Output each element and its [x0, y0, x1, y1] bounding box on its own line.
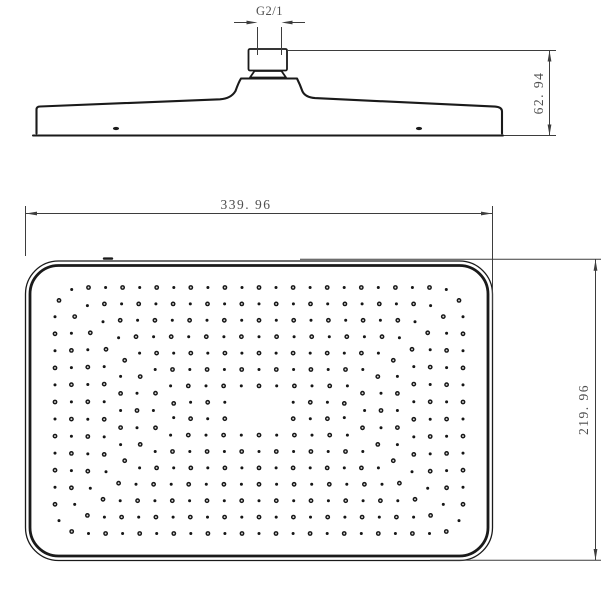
nozzle-dot — [445, 400, 448, 403]
nozzle-dot — [120, 427, 122, 429]
nozzle-dot — [70, 366, 73, 369]
nozzle-dot — [105, 348, 107, 350]
nozzle-dot — [326, 287, 328, 289]
nozzle-dot — [173, 402, 175, 404]
nozzle-dot — [346, 336, 348, 338]
nozzle-dot — [206, 352, 209, 355]
nozzle-dot — [205, 336, 207, 338]
nozzle-dot — [54, 435, 56, 437]
nozzle-dot — [188, 368, 191, 371]
nozzle-dot — [205, 483, 208, 486]
side-view: G2/1 62. 94 — [33, 4, 556, 136]
nozzle-dot — [223, 499, 226, 502]
nozzle-dot — [54, 503, 56, 505]
nozzle-dot — [309, 417, 312, 420]
nozzle-dot — [326, 302, 329, 305]
nozzle-dot — [241, 500, 243, 502]
nozzle-dot — [462, 418, 465, 421]
nozzle-dot — [343, 533, 345, 535]
side-height-dimension: 62. 94 — [288, 51, 556, 136]
nozzle-dot — [169, 384, 172, 387]
nozzle-dot — [54, 315, 57, 318]
nozzle-dot — [275, 451, 277, 453]
nozzle-dot — [445, 469, 448, 472]
nozzle-dot — [120, 302, 123, 305]
nozzle-dot — [156, 287, 158, 289]
nozzle-dot — [275, 466, 278, 469]
nozzle-dot — [429, 383, 432, 386]
nozzle-dot — [462, 435, 464, 437]
nozzle-dot — [360, 532, 363, 535]
nozzle-dot — [223, 532, 226, 535]
nozzle-dot — [327, 499, 330, 502]
nozzle-dot — [414, 320, 417, 323]
nozzle-dot — [360, 287, 362, 289]
nozzle-dot — [207, 401, 209, 403]
nozzle-dot — [377, 286, 380, 289]
nozzle-dot — [58, 519, 61, 522]
thread-dimension: G2/1 — [234, 4, 305, 55]
nozzle-dot — [345, 369, 347, 371]
nozzle-dot — [446, 349, 448, 351]
nozzle-dot — [458, 519, 461, 522]
nozzle-dot — [86, 418, 89, 421]
nozzle-dot — [171, 319, 174, 322]
nozzle-dot — [206, 500, 208, 502]
nozzle-dot — [153, 483, 155, 485]
nozzle-dot — [310, 451, 312, 453]
nozzle-dot — [292, 418, 294, 420]
nozzle-dot — [155, 427, 157, 429]
nozzle-dot — [380, 410, 382, 412]
nozzle-dot — [206, 451, 208, 453]
nozzle-dot — [326, 532, 329, 535]
nozzle-dot — [462, 503, 464, 505]
nozzle-dot — [258, 499, 261, 502]
nozzle-dot — [223, 434, 225, 436]
nozzle-dot — [378, 516, 381, 519]
nozzle-dot — [189, 516, 191, 518]
nozzle-dot — [240, 483, 243, 486]
nozzle-dot — [458, 299, 460, 301]
nozzle-dot — [326, 352, 328, 354]
nozzle-dot — [344, 319, 347, 322]
nozzle-dot — [170, 336, 172, 338]
nozzle-dot — [309, 352, 312, 355]
nozzle-dot — [275, 384, 278, 387]
nozzle-dot — [293, 319, 295, 321]
nozzle-dot — [363, 483, 365, 485]
nozzle-dot — [70, 400, 73, 403]
nozzle-dot — [380, 426, 383, 429]
nozzle-dot — [54, 469, 56, 471]
nozzle-dot — [189, 532, 192, 535]
nozzle-dot — [102, 320, 105, 323]
nozzle-dot — [396, 499, 399, 502]
nozzle-dot — [293, 434, 295, 436]
nozzle-dot — [241, 286, 244, 289]
nozzle-dot — [377, 352, 380, 355]
nozzle-dot — [172, 369, 174, 371]
nozzle-dot — [346, 384, 349, 387]
nozzle-dot — [413, 453, 415, 455]
nozzle-dot — [346, 434, 349, 437]
nozzle-dot — [462, 383, 465, 386]
nozzle-dot — [154, 319, 156, 321]
nozzle-dot — [361, 516, 363, 518]
nozzle-dot — [137, 516, 140, 519]
nozzle-dot — [343, 352, 346, 355]
nozzle-dot — [241, 369, 243, 371]
nozzle-dot — [240, 516, 243, 519]
nozzle-dot — [155, 516, 157, 518]
nozzle-dot — [223, 450, 226, 453]
nozzle-dot — [172, 451, 174, 453]
nozzle-dot — [70, 384, 72, 386]
nozzle-dot — [70, 418, 72, 420]
nozzle-dot — [70, 487, 72, 489]
dim-arrow-down-icon — [548, 125, 552, 136]
nozzle-dot — [377, 533, 379, 535]
face-inner-rim — [30, 266, 488, 557]
dim-arrow-right-icon — [247, 21, 258, 25]
nozzle-dot — [117, 336, 120, 339]
nozzle-dot — [87, 470, 89, 472]
nozzle-dot — [361, 450, 364, 453]
nozzle-dot — [343, 416, 346, 419]
nozzle-dot — [427, 332, 429, 334]
nozzle-dot — [345, 483, 348, 486]
nozzle-dot — [70, 452, 72, 454]
nozzle-dot — [395, 302, 398, 305]
nozzle-dot — [326, 467, 328, 469]
nozzle-dot — [54, 367, 56, 369]
nozzle-dot — [258, 368, 261, 371]
nozzle-dot — [86, 304, 89, 307]
nozzle-dot — [292, 287, 294, 289]
nozzle-dot — [169, 434, 172, 437]
nozzle-dot — [190, 418, 192, 420]
nozzle-dot — [104, 286, 107, 289]
nozzle-dot — [462, 401, 464, 403]
nozzle-dot — [395, 516, 397, 518]
nozzle-dot — [446, 418, 448, 420]
nozzle-dot — [412, 516, 415, 519]
nozzle-dot — [54, 452, 57, 455]
nozzle-dot — [58, 299, 60, 301]
nozzle-dot — [394, 532, 397, 535]
nozzle-dot — [309, 466, 312, 469]
nozzle-dot — [258, 352, 260, 354]
nozzle-dot — [224, 467, 226, 469]
nozzle-dot — [343, 466, 346, 469]
nozzle-dot — [121, 532, 124, 535]
nozzle-dot — [275, 286, 278, 289]
nozzle-dot — [292, 532, 295, 535]
nozzle-dot — [190, 287, 192, 289]
nozzle-dot — [442, 503, 445, 506]
nozzle-dot — [378, 303, 380, 305]
nozzle-dot — [206, 417, 209, 420]
nozzle-dot — [412, 365, 415, 368]
nozzle-dot — [258, 335, 261, 338]
nozzle-dot — [360, 352, 362, 354]
nozzle-dot — [206, 286, 209, 289]
nozzle-dot — [343, 402, 345, 404]
nozzle-dot — [155, 392, 157, 394]
nozzle-dot — [309, 401, 311, 403]
nozzle-dot — [326, 418, 328, 420]
nozzle-dot — [190, 467, 192, 469]
nozzle-dot — [224, 287, 226, 289]
nozzle-dot — [54, 486, 57, 489]
nozzle-dot — [326, 401, 329, 404]
nozzle-dot — [394, 287, 396, 289]
nozzle-dot — [119, 319, 121, 321]
nozzle-dot — [71, 531, 73, 533]
nozzle-dot — [380, 392, 383, 395]
nozzle-dot — [188, 499, 191, 502]
nozzle-dot — [190, 352, 192, 354]
nozzle-dot — [429, 401, 431, 403]
nozzle-dot — [258, 302, 261, 305]
nozzle-dot — [119, 499, 122, 502]
nozzle-dot — [188, 483, 190, 485]
nozzle-dot — [309, 286, 312, 289]
nozzle-dot-grid — [53, 285, 466, 536]
nozzle-dot — [119, 443, 122, 446]
nozzle-dot — [224, 352, 226, 354]
nozzle-dot — [103, 453, 105, 455]
connector-collar — [250, 71, 286, 78]
nozzle-dot — [462, 367, 464, 369]
nozzle-dot — [446, 384, 448, 386]
nozzle-dot — [309, 516, 312, 519]
nozzle-dot — [343, 516, 346, 519]
nozzle-dot — [275, 516, 278, 519]
nozzle-dot — [397, 319, 399, 321]
nozzle-dot — [429, 366, 431, 368]
nozzle-dot — [87, 436, 89, 438]
nozzle-dot — [139, 376, 141, 378]
nozzle-dot — [398, 336, 401, 339]
nozzle-dot — [241, 303, 243, 305]
nozzle-dot — [102, 498, 104, 500]
nozzle-dot — [275, 434, 278, 437]
nozzle-dot — [293, 483, 295, 485]
nozzle-dot — [86, 452, 89, 455]
nozzle-dot — [223, 368, 226, 371]
nozzle-dot — [206, 466, 209, 469]
nozzle-dot — [293, 385, 295, 387]
nozzle-dot — [206, 319, 209, 322]
nozzle-dot — [152, 409, 155, 412]
nozzle-dot — [429, 418, 432, 421]
dim-arrow-left-icon — [26, 212, 37, 216]
nozzle-dot — [361, 368, 364, 371]
nozzle-dot — [381, 336, 383, 338]
nozzle-dot — [310, 369, 312, 371]
nozzle-dot — [258, 516, 260, 518]
nozzle-dot — [172, 286, 175, 289]
nozzle-dot — [345, 451, 347, 453]
nozzle-dot — [361, 302, 364, 305]
nozzle-dot — [139, 533, 141, 535]
nozzle-dot — [187, 434, 189, 436]
nozzle-dot — [135, 483, 138, 486]
nozzle-dot — [362, 499, 365, 502]
nozzle-dot — [411, 348, 413, 350]
nozzle-dot — [275, 319, 278, 322]
nozzle-dot — [119, 375, 122, 378]
nozzle-dot — [344, 303, 346, 305]
nozzle-dot — [392, 359, 394, 361]
nozzle-dot — [363, 335, 366, 338]
nozzle-dot — [258, 319, 260, 321]
nozzle-dot — [258, 385, 260, 387]
nozzle-dot — [462, 333, 464, 335]
nozzle-dot — [462, 315, 465, 318]
nozzle-dot — [70, 349, 72, 351]
nozzle-dot — [442, 316, 444, 318]
nozzle-dot — [327, 368, 330, 371]
nozzle-dot — [240, 466, 243, 469]
nozzle-dot — [121, 516, 123, 518]
nozzle-dot — [223, 302, 226, 305]
nozzle-dot — [445, 366, 448, 369]
nozzle-dot — [292, 352, 294, 354]
nozzle-dot — [429, 452, 432, 455]
nozzle-dot — [223, 401, 226, 404]
nozzle-dot — [103, 365, 106, 368]
nozzle-dot — [311, 336, 313, 338]
nozzle-dot — [275, 533, 277, 535]
nozzle-dot — [360, 467, 362, 469]
nozzle-dot — [222, 335, 225, 338]
nozzle-dot — [292, 516, 294, 518]
nozzle-dot — [73, 503, 76, 506]
nozzle-dot — [428, 532, 431, 535]
nozzle-dot — [329, 434, 331, 436]
nozzle-dot — [396, 392, 398, 394]
dim-arrow-right-icon — [481, 212, 492, 216]
nozzle-dot — [258, 287, 260, 289]
nozzle-dot — [429, 287, 431, 289]
nozzle-dot — [414, 498, 416, 500]
nozzle-dot — [240, 384, 243, 387]
face-view: 339. 96 219. 96 — [26, 197, 602, 561]
nozzle-dot — [189, 302, 192, 305]
nozzle-dot — [429, 470, 431, 472]
nozzle-dot — [139, 443, 141, 445]
nozzle-dot — [292, 401, 295, 404]
nozzle-dot — [445, 332, 448, 335]
nozzle-dot — [429, 348, 432, 351]
nozzle-dot — [327, 450, 330, 453]
nozzle-dot — [103, 383, 105, 385]
nozzle-dot — [275, 483, 278, 486]
nozzle-dot — [118, 482, 120, 484]
nozzle-dot — [223, 385, 225, 387]
nozzle-dot — [136, 426, 139, 429]
nozzle-dot — [172, 516, 175, 519]
nozzle-dot — [310, 500, 312, 502]
nozzle-dot — [377, 376, 379, 378]
thread-label: G2/1 — [256, 4, 283, 18]
nozzle-dot — [103, 516, 106, 519]
nozzle-dot — [88, 287, 90, 289]
nozzle-dot — [241, 533, 243, 535]
nozzle-dot — [240, 352, 243, 355]
nozzle-dot — [413, 383, 415, 385]
nozzle-dot — [258, 532, 261, 535]
nozzle-dot — [462, 469, 464, 471]
nozzle-dot — [172, 466, 175, 469]
nozzle-dot — [223, 483, 225, 485]
nozzle-dot — [86, 514, 88, 516]
bottom-mark-left — [113, 127, 119, 130]
side-height-value: 62. 94 — [531, 72, 546, 115]
nozzle-dot — [103, 400, 106, 403]
nozzle-dot — [89, 487, 92, 490]
nozzle-dot — [138, 466, 141, 469]
nozzle-dot — [206, 369, 208, 371]
nozzle-dot — [70, 288, 73, 291]
nozzle-dot — [310, 483, 313, 486]
nozzle-dot — [120, 392, 122, 394]
nozzle-dot — [170, 483, 173, 486]
nozzle-dot — [86, 383, 89, 386]
nozzle-dot — [396, 443, 399, 446]
nozzle-dot — [381, 483, 384, 486]
nozzle-dot — [311, 384, 314, 387]
nozzle-dot — [224, 516, 226, 518]
nozzle-dot — [362, 392, 364, 394]
nozzle-dot — [241, 451, 243, 453]
nozzle-dot — [154, 450, 157, 453]
nozzle-dot — [429, 436, 431, 438]
nozzle-dot — [292, 450, 295, 453]
nozzle-dot — [310, 319, 313, 322]
nozzle-dot — [173, 533, 175, 535]
nozzle-dot — [258, 467, 260, 469]
nozzle-dot — [152, 335, 155, 338]
nozzle-dot — [86, 348, 89, 351]
nozzle-dot — [124, 359, 126, 361]
nozzle-dot — [188, 450, 191, 453]
nozzle-dot — [329, 385, 331, 387]
nozzle-dot — [429, 304, 432, 307]
nozzle-dot — [446, 452, 448, 454]
nozzle-dot — [187, 335, 190, 338]
face-width-value: 339. 96 — [221, 197, 272, 212]
nozzle-dot — [258, 450, 261, 453]
nozzle-dot — [103, 303, 105, 305]
nozzle-dot — [240, 434, 243, 437]
nozzle-dot — [445, 435, 448, 438]
nozzle-dot — [154, 368, 157, 371]
nozzle-dot — [205, 434, 208, 437]
nozzle-dot — [89, 332, 91, 334]
nozzle-dot — [462, 452, 465, 455]
nozzle-dot — [258, 434, 260, 436]
nozzle-dot — [396, 375, 399, 378]
nozzle-dot — [171, 500, 173, 502]
nozzle-dot — [87, 401, 89, 403]
nozzle-dot — [413, 418, 415, 420]
nozzle-dot — [310, 303, 312, 305]
nozzle-dot — [292, 467, 294, 469]
